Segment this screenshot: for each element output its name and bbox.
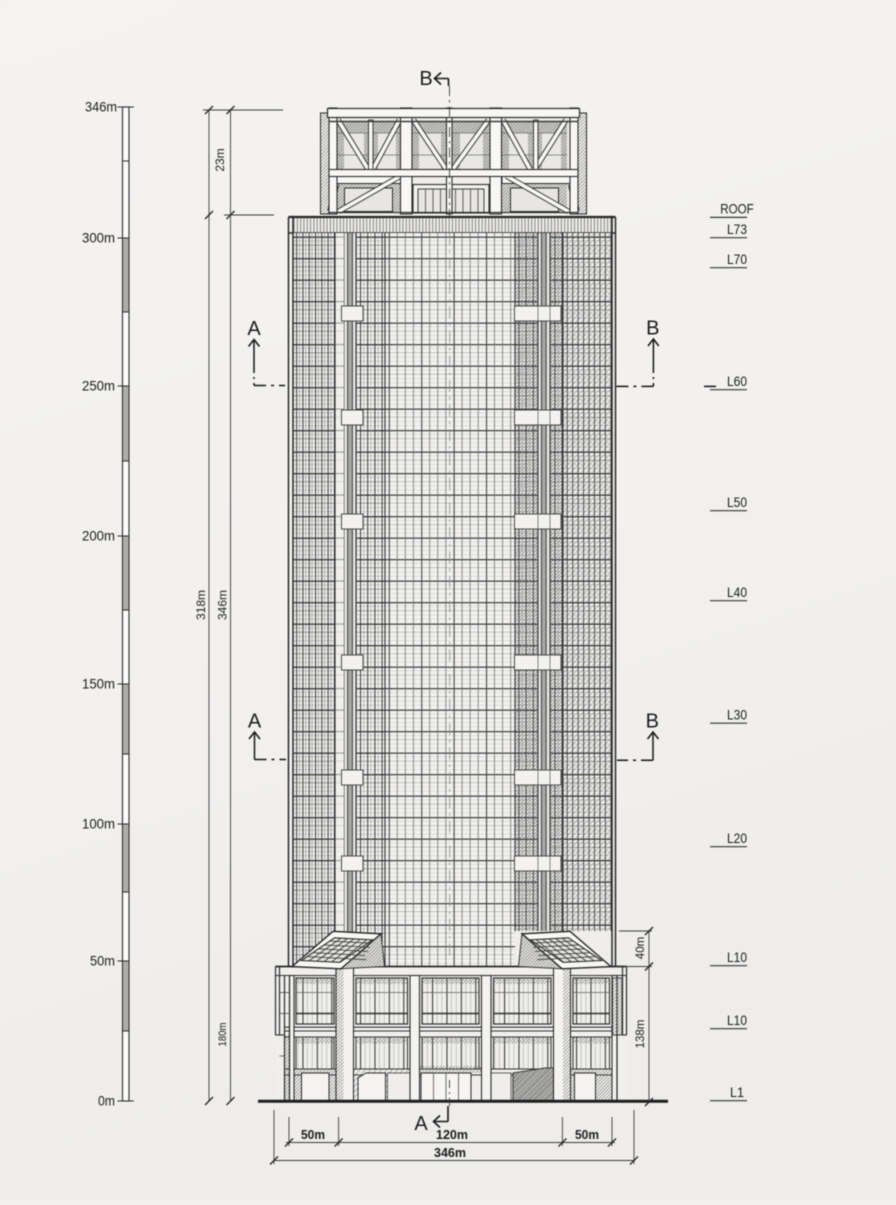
- svg-text:0m: 0m: [98, 1094, 115, 1109]
- svg-text:250m: 250m: [82, 379, 115, 394]
- svg-text:B: B: [646, 711, 659, 733]
- svg-text:B: B: [419, 68, 432, 90]
- svg-text:A: A: [247, 318, 261, 340]
- svg-text:200m: 200m: [82, 529, 115, 544]
- svg-text:50m: 50m: [90, 954, 115, 969]
- svg-text:L70: L70: [727, 251, 747, 267]
- svg-text:346m: 346m: [85, 100, 117, 115]
- svg-text:346m: 346m: [216, 590, 230, 620]
- svg-text:50m: 50m: [575, 1128, 599, 1142]
- svg-text:138m: 138m: [635, 1020, 647, 1049]
- svg-text:A: A: [248, 711, 262, 733]
- svg-text:L10: L10: [727, 949, 747, 965]
- svg-text:300m: 300m: [82, 231, 115, 246]
- svg-text:L73: L73: [727, 221, 747, 237]
- svg-text:L10: L10: [727, 1012, 747, 1028]
- svg-text:346m: 346m: [434, 1146, 466, 1160]
- svg-text:ROOF: ROOF: [720, 201, 754, 217]
- svg-text:L1: L1: [730, 1084, 744, 1100]
- svg-text:50m: 50m: [301, 1128, 325, 1142]
- svg-text:L30: L30: [727, 707, 747, 723]
- svg-text:L40: L40: [727, 584, 747, 600]
- svg-text:120m: 120m: [436, 1128, 468, 1142]
- svg-text:23m: 23m: [213, 148, 227, 171]
- svg-text:100m: 100m: [82, 817, 115, 832]
- svg-text:318m: 318m: [194, 590, 208, 620]
- svg-text:L50: L50: [727, 494, 747, 510]
- svg-text:L60: L60: [727, 373, 747, 389]
- svg-text:B: B: [646, 318, 659, 340]
- svg-text:L20: L20: [727, 830, 747, 846]
- svg-text:A: A: [414, 1113, 428, 1135]
- svg-text:180m: 180m: [217, 1023, 229, 1047]
- svg-text:40m: 40m: [635, 937, 647, 959]
- svg-text:150m: 150m: [82, 677, 115, 692]
